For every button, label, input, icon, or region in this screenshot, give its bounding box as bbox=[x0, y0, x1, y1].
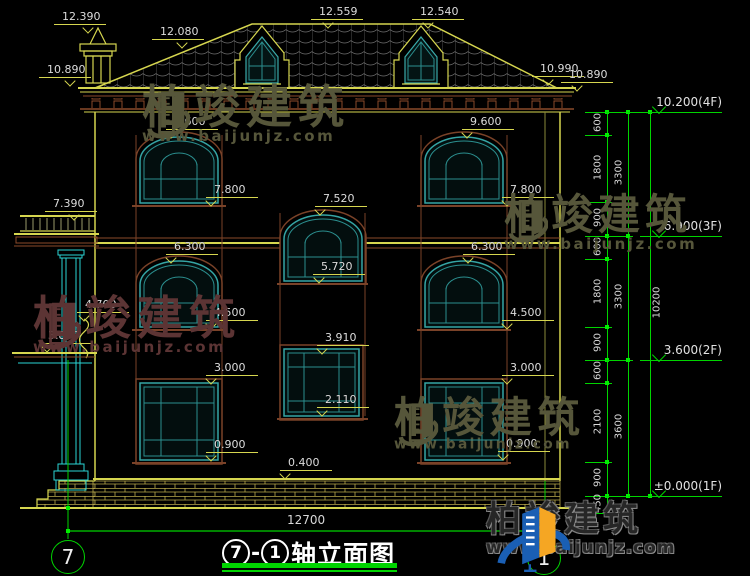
elevation-label: 3.000 bbox=[214, 362, 246, 374]
axis-bubble-7: 7 bbox=[51, 540, 85, 574]
level-flag-line bbox=[640, 112, 722, 113]
dimension-value: 1800 bbox=[593, 272, 604, 312]
elevation-label: 10.890 bbox=[569, 69, 608, 81]
elevation-label: 0.400 bbox=[288, 457, 320, 469]
elevation-label: 12.559 bbox=[319, 6, 358, 18]
elevation-label: 6.300 bbox=[471, 241, 503, 253]
elevation-label: 12.080 bbox=[160, 26, 199, 38]
elevation-label: 4.700 bbox=[85, 299, 117, 311]
elevation-label: 10.890 bbox=[47, 64, 86, 76]
dimension-value: 3300 bbox=[614, 153, 625, 193]
dimension-value: 2100 bbox=[593, 401, 604, 441]
elevation-label: 7.800 bbox=[214, 184, 246, 196]
level-flag-line bbox=[640, 360, 722, 361]
brand-logo-icon bbox=[486, 502, 586, 574]
elevation-label: 2.110 bbox=[325, 394, 357, 406]
elevation-label: 7.800 bbox=[510, 184, 542, 196]
elevation-leader-line bbox=[561, 82, 613, 83]
dimension-value: 10200 bbox=[652, 283, 663, 323]
dimension-chain-line bbox=[607, 112, 608, 513]
elevation-leader-line bbox=[311, 19, 363, 20]
level-flag-label: 10.200(4F) bbox=[632, 95, 722, 109]
elevation-label: 9.600 bbox=[174, 116, 206, 128]
dimension-value: 1800 bbox=[593, 147, 604, 187]
dimension-marker bbox=[605, 325, 609, 329]
dimension-value: 3600 bbox=[614, 407, 625, 447]
elevation-label: 6.300 bbox=[174, 241, 206, 253]
elevation-label: 12.390 bbox=[62, 11, 101, 23]
title-underline-thick bbox=[222, 563, 397, 568]
brand-logo: 柏竣建筑 www.baijunjz.com bbox=[486, 502, 676, 558]
overall-width-dimension: 12700 bbox=[287, 513, 325, 527]
level-flag-line bbox=[640, 496, 722, 497]
annotation-overlay: 12.39012.08012.55912.54010.89010.99010.8… bbox=[0, 0, 750, 576]
dimension-marker bbox=[605, 133, 609, 137]
elevation-label: 4.500 bbox=[214, 307, 246, 319]
elevation-label: 7.390 bbox=[53, 198, 85, 210]
elevation-leader-line bbox=[412, 19, 464, 20]
elevation-label: 5.720 bbox=[321, 261, 353, 273]
dimension-marker bbox=[605, 200, 609, 204]
elevation-leader-line bbox=[54, 24, 106, 25]
elevation-label: 3.910 bbox=[325, 332, 357, 344]
level-flag-label: 6.900(3F) bbox=[632, 219, 722, 233]
dimension-value: 600 bbox=[593, 102, 604, 142]
elevation-label: 7.520 bbox=[323, 193, 355, 205]
level-flag-line bbox=[640, 236, 722, 237]
level-flag-label: 3.600(2F) bbox=[632, 343, 722, 357]
dimension-marker bbox=[626, 234, 630, 238]
level-flag-label: ±0.000(1F) bbox=[632, 479, 722, 493]
dimension-marker bbox=[605, 460, 609, 464]
elevation-label: 4.500 bbox=[510, 307, 542, 319]
elevation-label: 0.900 bbox=[214, 439, 246, 451]
elevation-label: 0.900 bbox=[506, 438, 538, 450]
title-dash: - bbox=[251, 541, 260, 566]
dimension-value: 3300 bbox=[614, 277, 625, 317]
dimension-chain-line bbox=[628, 112, 629, 496]
title-underline-thin bbox=[222, 570, 397, 572]
dimension-marker bbox=[605, 257, 609, 261]
cad-canvas: 12.39012.08012.55912.54010.89010.99010.8… bbox=[0, 0, 750, 576]
dimension-value: 600 bbox=[593, 226, 604, 266]
elevation-leader-line bbox=[39, 77, 91, 78]
elevation-label: 3.000 bbox=[510, 362, 542, 374]
elevation-label: 9.600 bbox=[470, 116, 502, 128]
dimension-marker bbox=[605, 381, 609, 385]
dimension-marker bbox=[626, 358, 630, 362]
dimension-value: 600 bbox=[593, 350, 604, 390]
elevation-label: 3.800 bbox=[48, 330, 80, 342]
elevation-label: 12.540 bbox=[420, 6, 459, 18]
